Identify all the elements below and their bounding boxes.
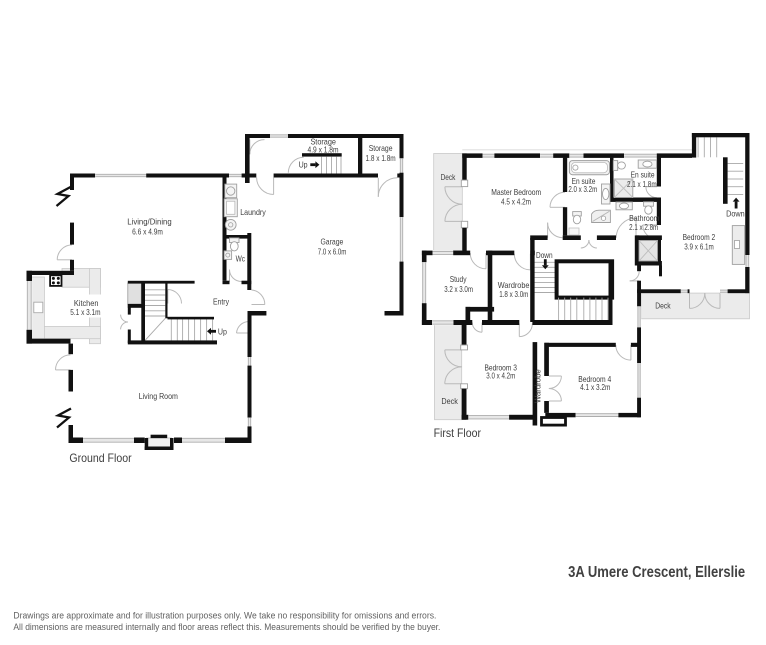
svg-text:All dimensions are measured in: All dimensions are measured internally a… [13,622,440,632]
svg-text:Kitchen: Kitchen [74,299,99,308]
svg-text:6.6 x 4.9m: 6.6 x 4.9m [132,228,163,237]
svg-text:2.1 x 1.8m: 2.1 x 1.8m [627,180,657,189]
svg-text:Storage: Storage [369,144,393,153]
svg-text:Entry: Entry [213,298,230,307]
svg-text:Drawings are approximate and f: Drawings are approximate and for illustr… [13,611,436,621]
svg-text:Down: Down [726,210,745,219]
svg-text:3.2 x 3.0m: 3.2 x 3.0m [444,285,473,294]
svg-text:Down: Down [536,251,553,260]
svg-text:1.8 x 3.0m: 1.8 x 3.0m [499,290,528,299]
svg-text:3.9 x 6.1m: 3.9 x 6.1m [684,242,714,251]
svg-text:Master Bedroom: Master Bedroom [491,188,541,197]
svg-text:Wardrobe: Wardrobe [534,369,543,403]
svg-text:7.0 x 6.0m: 7.0 x 6.0m [318,248,347,257]
svg-text:First Floor: First Floor [434,426,481,440]
svg-text:Deck: Deck [441,173,457,182]
svg-text:3.0 x 4.2m: 3.0 x 4.2m [486,371,515,380]
svg-text:Ground Floor: Ground Floor [69,451,131,465]
svg-text:4.9 x 1.8m: 4.9 x 1.8m [308,145,339,154]
svg-text:Up: Up [218,327,227,336]
svg-text:Study: Study [450,275,468,284]
svg-text:Deck: Deck [441,397,458,406]
svg-text:En suite: En suite [631,170,655,179]
svg-text:1.8 x 1.8m: 1.8 x 1.8m [366,154,396,163]
svg-text:Deck: Deck [655,301,671,310]
svg-text:4.5 x 4.2m: 4.5 x 4.2m [501,198,531,207]
svg-text:4.1 x 3.2m: 4.1 x 3.2m [580,383,610,392]
svg-text:2.1 x 2.8m: 2.1 x 2.8m [629,223,658,232]
svg-text:5.1 x 3.1m: 5.1 x 3.1m [70,308,100,317]
svg-text:Up: Up [299,161,308,170]
svg-text:Garage: Garage [320,238,343,247]
svg-text:Bathroom: Bathroom [629,214,660,223]
svg-text:3A Umere Crescent, Ellerslie: 3A Umere Crescent, Ellerslie [568,564,745,581]
svg-text:Living Room: Living Room [139,392,178,401]
svg-text:2.0 x 3.2m: 2.0 x 3.2m [568,185,597,194]
svg-text:Living/Dining: Living/Dining [127,218,172,227]
svg-text:Bedroom 2: Bedroom 2 [683,233,716,242]
svg-text:Laundry: Laundry [240,208,266,217]
svg-text:Wc: Wc [236,254,245,263]
